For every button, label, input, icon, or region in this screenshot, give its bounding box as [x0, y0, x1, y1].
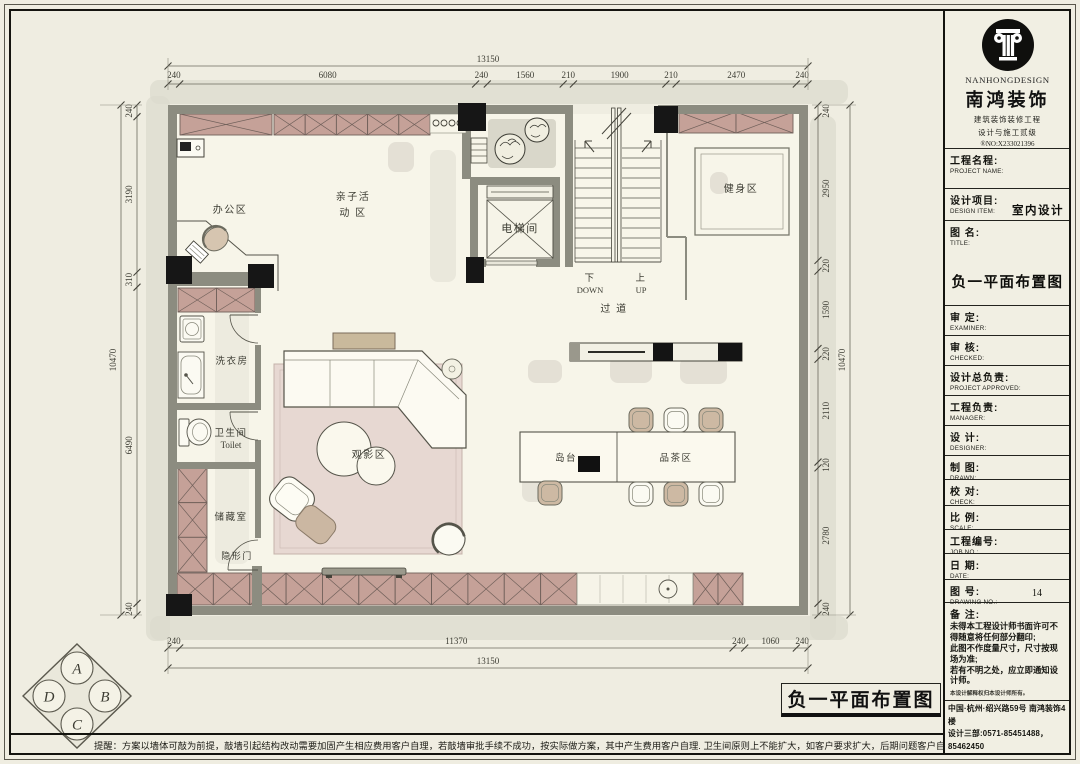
logo-cert-number: ®NO:X233021396	[945, 140, 1070, 148]
compass-letter: A	[71, 662, 82, 678]
sideboard-black-section	[653, 343, 673, 361]
dim-text: 10470	[108, 348, 118, 371]
wall-segment	[255, 345, 261, 403]
counter-sink-drain	[667, 588, 670, 591]
dim-text: 240	[167, 70, 181, 80]
logo-volute-dot	[997, 36, 1001, 40]
logo-abacus	[996, 29, 1020, 33]
remark-line: 此图不作度量尺寸，尺寸按现场为准;	[950, 643, 1065, 665]
bench	[322, 568, 406, 575]
wall-segment	[462, 130, 471, 179]
field-label-en: PROJECT NAME:	[950, 168, 1065, 175]
field-value: 负一平面布置图	[950, 271, 1065, 292]
dim-text: 1900	[611, 70, 630, 80]
wall-segment	[168, 606, 808, 615]
plan-caption-box: 负一平面布置图	[781, 683, 941, 717]
field-label-en: PROJECT APPROVED:	[950, 385, 1065, 392]
dim-text: 210	[562, 70, 576, 80]
field-label-cn: 图 名:	[950, 224, 1065, 239]
tv-console	[333, 333, 395, 349]
dim-text: 240	[124, 104, 134, 118]
field-label-cn: 设计总负责:	[950, 369, 1065, 384]
dim-text: 2110	[821, 401, 831, 419]
field-label-en: DESIGNER:	[950, 445, 1065, 452]
field-label-en: CHECKED:	[950, 355, 1065, 362]
structural-column	[248, 264, 274, 288]
company-phone: 设计三部:0571-85451488，85462450	[948, 728, 1067, 753]
remarks-block: 备 注: 未得本工程设计师书面许可不得随意将任何部分翻印;此图不作度量尺寸，尺寸…	[945, 602, 1070, 700]
stair-rail	[618, 108, 622, 262]
field-label-cn: 工程负责:	[950, 399, 1065, 414]
wall-segment	[536, 259, 560, 267]
dim-text: 240	[475, 70, 489, 80]
dim-text: 13150	[477, 54, 500, 64]
field-label-cn: 工程编号:	[950, 533, 1065, 548]
field-value: 14	[1032, 588, 1042, 599]
logo-flute	[1002, 35, 1005, 56]
titleblock-row-scale: 比 例:SCALE:	[945, 505, 1070, 529]
titleblock-row-project-approved: 设计总负责:PROJECT APPROVED:	[945, 365, 1070, 395]
room-label-corridor: 过 道	[600, 302, 627, 315]
top-cabinet-b	[274, 114, 430, 135]
drawing-sheet: 办公区亲子活动 区电梯间健身区过 道洗衣房卫生间Toilet储藏室隐形门观影区岛…	[0, 0, 1080, 764]
field-label-cn: 设 计:	[950, 429, 1065, 444]
wall-segment	[177, 462, 261, 469]
room-label-gym: 健身区	[724, 182, 759, 195]
logo-volute-dot	[1015, 36, 1019, 40]
field-value: 室内设计	[1012, 202, 1064, 218]
logo-flute	[1006, 35, 1009, 56]
wall-segment	[470, 177, 478, 267]
exterior-shading	[146, 96, 170, 641]
wall-segment	[255, 286, 261, 313]
dim-text: 240	[124, 602, 134, 616]
dining-chair	[629, 408, 653, 432]
plan-caption: 负一平面布置图	[787, 685, 934, 712]
titleblock-row-drawing-no: 图 号:DRAWING NO.:14	[945, 579, 1070, 602]
titleblock-row-manager: 工程负责:MANAGER:	[945, 395, 1070, 425]
wall-segment	[168, 105, 177, 615]
titleblock-row-design-item: 设计项目:DESIGN ITEM:室内设计	[945, 188, 1070, 220]
remarks-fine-print: 本设计解释权归本设计师所有。	[950, 689, 1065, 697]
structural-column	[458, 103, 486, 131]
remark-line: 若有不明之处，应立即通知设计师。	[950, 665, 1065, 687]
titleblock-row-examiner: 审 定:EXAMINER:	[945, 305, 1070, 335]
logo-plinth	[999, 57, 1017, 61]
titleblock-row-checked: 审 核:CHECKED:	[945, 335, 1070, 365]
dim-text: 240	[795, 70, 809, 80]
structural-column	[166, 256, 192, 284]
field-label-en: EXAMINER:	[950, 325, 1065, 332]
dim-text: 240	[167, 636, 181, 646]
wall-segment	[252, 566, 262, 606]
dim-text: 13150	[477, 656, 500, 666]
column-logo-glyph	[982, 19, 1034, 71]
dim-text: 3190	[124, 185, 134, 204]
structural-column	[166, 594, 192, 616]
titleblock-row-title: 图 名:TITLE:负一平面布置图	[945, 220, 1070, 306]
wall-segment	[168, 105, 573, 114]
dining-chair	[629, 482, 653, 506]
stair-label-down-cn: 下	[584, 273, 595, 284]
company-address: 中国·杭州·绍兴路59号 南鸿装饰4楼	[948, 703, 1067, 728]
dim-text: 220	[821, 347, 831, 361]
field-label-en: DRAWING NO.:	[950, 599, 1065, 606]
wall-segment	[177, 403, 261, 410]
room-label-toilet-en: Toilet	[221, 440, 242, 450]
room-label-hidden-door: 隐形门	[221, 550, 253, 561]
bottom-cabinet-right	[693, 573, 743, 605]
dim-text: 2470	[727, 70, 746, 80]
logo-english: NANHONGDESIGN	[945, 75, 1070, 85]
dim-text: 220	[821, 258, 831, 272]
dim-text: 210	[664, 70, 678, 80]
elevator-door	[486, 261, 537, 265]
dim-text: 2950	[821, 179, 831, 198]
plant-small	[525, 118, 549, 142]
dim-text: 1060	[762, 636, 781, 646]
top-cabinet-a	[180, 114, 272, 135]
sideboard-end-cap	[570, 343, 580, 361]
titleblock-row-job-no: 工程编号:JOB NO.:	[945, 529, 1070, 553]
island-tea-table	[520, 432, 735, 482]
compass-letter: C	[72, 718, 83, 734]
dim-text: 1590	[821, 300, 831, 319]
field-label-cn: 审 核:	[950, 339, 1065, 354]
field-label-en: MANAGER:	[950, 415, 1065, 422]
remarks-lines: 未得本工程设计师书面许可不得随意将任何部分翻印;此图不作度量尺寸，尺寸按现场为准…	[950, 621, 1065, 686]
room-label-elevator: 电梯间	[501, 222, 539, 235]
storage-cabinet	[178, 468, 207, 572]
stair-label-up-en: UP	[636, 285, 647, 295]
compass-letter: B	[100, 690, 109, 706]
field-label-en: TITLE:	[950, 240, 1065, 247]
wall-segment	[470, 177, 560, 185]
room-label-cinema: 观影区	[352, 449, 387, 461]
dim-text: 10470	[837, 348, 847, 371]
field-label-cn: 审 定:	[950, 309, 1065, 324]
footer-note-bar: 提醒：方案以墙体可敲为前提，敲墙引起结构改动需要加固产生相应费用客户自理，若敲墙…	[10, 733, 943, 755]
bench-foot	[326, 575, 332, 578]
shadow-blob	[528, 360, 562, 383]
dim-text: 240	[795, 636, 809, 646]
footer-note: 提醒：方案以墙体可敲为前提，敲墙引起结构改动需要加固产生相应费用客户自理，若敲墙…	[94, 738, 943, 752]
dim-text: 11370	[445, 636, 468, 646]
sideboard-black-section	[718, 343, 742, 361]
office-printer-screen	[180, 142, 191, 151]
bottom-cabinet-left	[177, 573, 577, 605]
room-label-family-activity-1: 亲子活	[336, 190, 371, 203]
structural-column	[466, 257, 484, 283]
field-label-cn: 日 期:	[950, 557, 1065, 572]
dim-text: 240	[821, 104, 831, 118]
structural-column	[654, 106, 678, 133]
dim-text: 310	[124, 272, 134, 286]
dim-text: 240	[732, 636, 746, 646]
field-label-cn: 比 例:	[950, 509, 1065, 524]
shadow-blob	[388, 142, 414, 172]
company-logo-block: NANHONGDESIGN 南鸿装饰 建筑装饰装修工程 设计与施工贰级 ®NO:…	[945, 11, 1070, 148]
field-label-cn: 制 图:	[950, 459, 1065, 474]
titleblock-row-check: 校 对:CHECK:	[945, 479, 1070, 505]
dim-text: 2780	[821, 526, 831, 545]
room-label-storage: 储藏室	[214, 511, 247, 523]
remark-line: 未得本工程设计师书面许可不得随意将任何部分翻印;	[950, 621, 1065, 643]
wall-segment	[658, 105, 808, 114]
logo-subtitle-2: 设计与施工贰级	[945, 127, 1070, 138]
titleblock-row-date: 日 期:DATE:	[945, 553, 1070, 579]
stair-label-up-cn: 上	[635, 273, 646, 284]
shadow-blob	[430, 150, 456, 282]
logo-chinese: 南鸿装饰	[945, 86, 1070, 112]
dining-chair	[538, 481, 562, 505]
plant-large	[495, 134, 525, 164]
room-label-family-activity-2: 动 区	[339, 207, 366, 219]
titleblock-row-project-name: 工程名程:PROJECT NAME:	[945, 148, 1070, 188]
logo-flute	[1010, 35, 1013, 56]
dining-chair	[699, 408, 723, 432]
remarks-label: 备 注:	[950, 606, 1065, 621]
logo-subtitle-1: 建筑装饰装修工程	[945, 114, 1070, 125]
room-label-office: 办公区	[213, 203, 248, 216]
dim-text: 6080	[319, 70, 338, 80]
dim-text: 120	[821, 458, 831, 472]
laundry-cabinet	[178, 288, 255, 312]
sofa-side-table	[442, 359, 462, 379]
compass-letter: D	[43, 690, 55, 706]
wall-segment	[565, 114, 573, 267]
titleblock-row-designer: 设 计:DESIGNER:	[945, 425, 1070, 455]
wall-segment	[799, 105, 808, 615]
gym-cabinet	[679, 112, 793, 133]
wall-segment	[255, 440, 261, 538]
dining-chair	[664, 408, 688, 432]
room-label-toilet-cn: 卫生间	[214, 427, 247, 439]
dim-text: 1560	[516, 70, 535, 80]
shelf-rack	[471, 138, 487, 163]
field-label-cn: 图 号:	[950, 583, 1065, 598]
room-label-island: 岛台	[555, 452, 577, 464]
island-sink	[578, 456, 600, 472]
titleblock-row-drawn: 制 图:DRAWN:	[945, 455, 1070, 479]
room-label-tea: 品茶区	[659, 452, 692, 464]
company-logo-icon	[982, 19, 1034, 71]
title-block: NANHONGDESIGN 南鸿装饰 建筑装饰装修工程 设计与施工贰级 ®NO:…	[943, 11, 1070, 755]
bench-foot	[396, 575, 402, 578]
stair-label-down-en: DOWN	[577, 285, 603, 295]
dim-text: 6490	[124, 436, 134, 455]
field-label-cn: 工程名程:	[950, 152, 1065, 167]
company-address-block: 中国·杭州·绍兴路59号 南鸿装饰4楼 设计三部:0571-85451488，8…	[945, 700, 1070, 755]
dining-chair	[699, 482, 723, 506]
room-label-laundry: 洗衣房	[215, 355, 248, 367]
dining-chair	[664, 482, 688, 506]
field-label-cn: 校 对:	[950, 483, 1065, 498]
floor-plan-drawing: 办公区亲子活动 区电梯间健身区过 道洗衣房卫生间Toilet储藏室隐形门观影区岛…	[0, 0, 945, 764]
dim-text: 240	[821, 602, 831, 616]
